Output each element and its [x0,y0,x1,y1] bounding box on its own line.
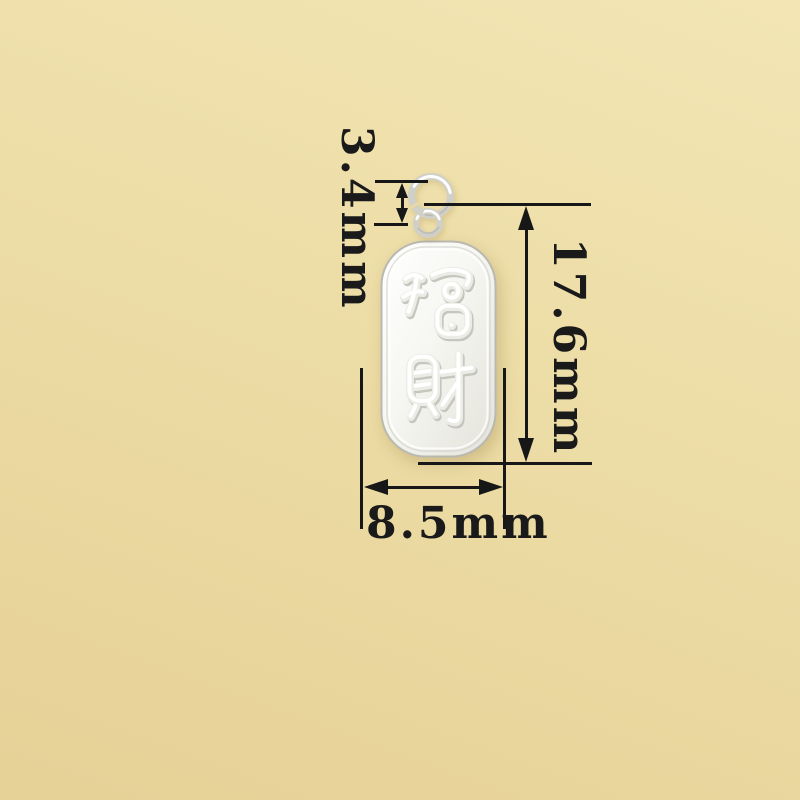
pendant-tag [380,240,497,458]
dim-arrow-tag-height [518,206,535,462]
dim-arrow-tag-width [364,479,503,496]
jump-rings [400,164,462,248]
dim-label-tag-width: 8.5mm [366,497,551,551]
arrowhead-down-icon [396,208,408,223]
dim-label-tag-height: 17.6mm [541,238,595,448]
ext-line-tag-top [424,203,591,206]
arrowhead-right-icon [479,479,503,495]
arrowhead-down-icon [518,438,534,462]
dim-label-ring-height: 3.4mm [329,126,383,286]
dim-arrow-ring-height [396,183,409,223]
ext-line-tag-left [360,368,363,529]
product-photo-canvas: 3.4mm 17.6mm 8.5mm [0,0,800,800]
